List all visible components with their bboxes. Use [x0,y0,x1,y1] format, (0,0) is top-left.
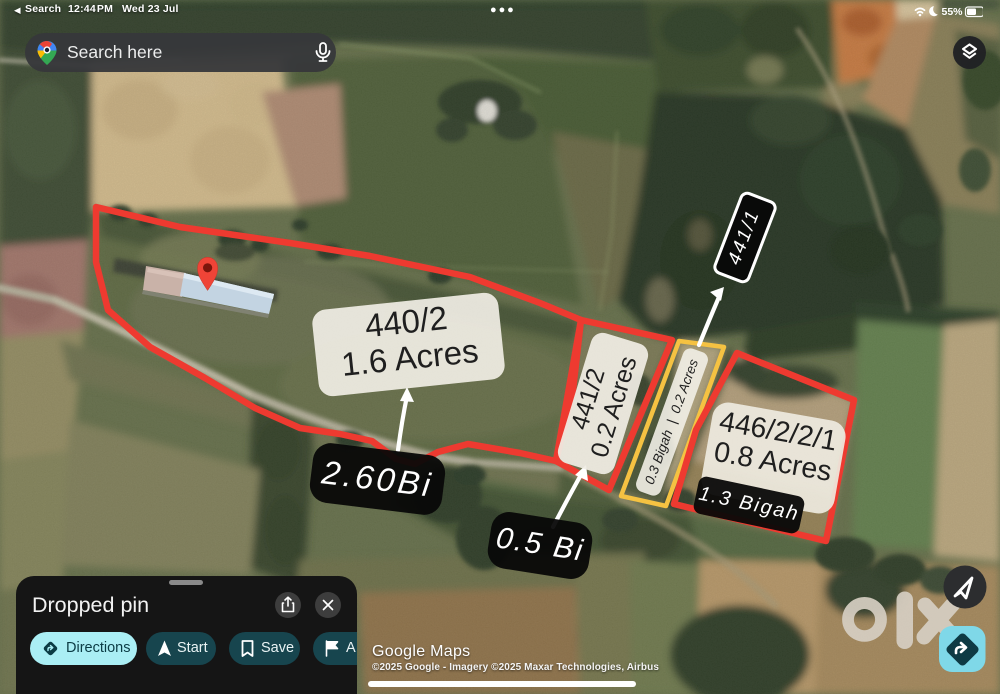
svg-text:55%: 55% [942,6,964,18]
